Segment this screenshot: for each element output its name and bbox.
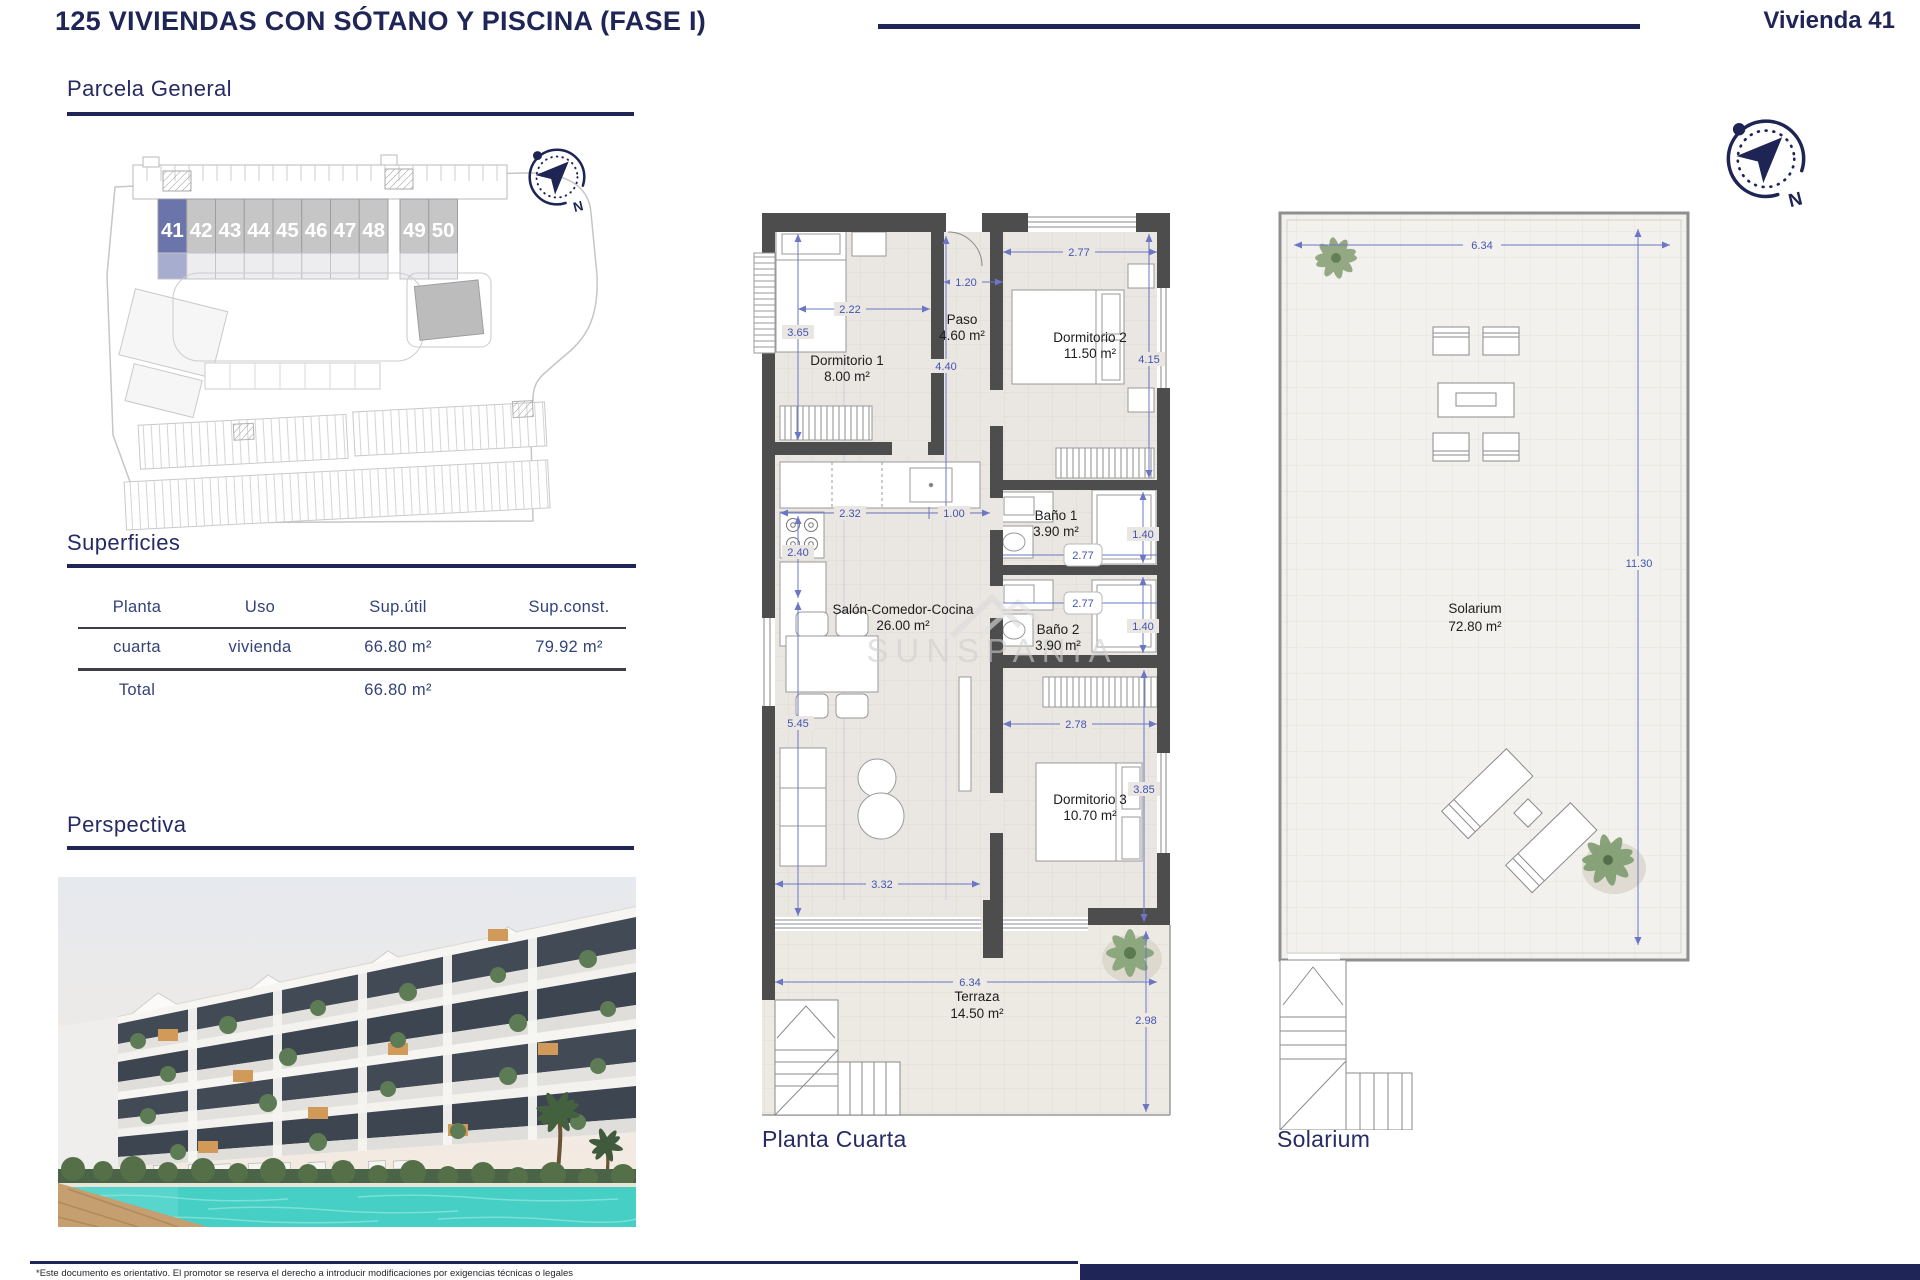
total-label: Total [92, 681, 182, 700]
side-building [58, 1017, 118, 1172]
page-title: 125 VIVIENDAS CON SÓTANO Y PISCINA (FASE… [55, 6, 706, 37]
svg-text:3.90 m²: 3.90 m² [1033, 524, 1079, 539]
brochure-page: { "header": { "title": "125 VIVIENDAS CO… [0, 0, 1920, 1280]
svg-text:Salón-Comedor-Cocina: Salón-Comedor-Cocina [832, 602, 974, 617]
svg-text:2.40: 2.40 [787, 547, 808, 559]
svg-text:44: 44 [247, 219, 270, 242]
chair [836, 694, 868, 718]
svg-text:1.20: 1.20 [955, 277, 976, 289]
svg-text:2.78: 2.78 [1065, 719, 1086, 731]
footer-bar [1080, 1264, 1920, 1280]
svg-text:2.32: 2.32 [839, 508, 860, 520]
svg-text:3.85: 3.85 [1133, 784, 1154, 796]
floor-plan: SUNSPANIA [740, 200, 1180, 1130]
cell-planta: cuarta [92, 638, 182, 657]
svg-text:Dormitorio 1: Dormitorio 1 [810, 353, 884, 368]
svg-text:Baño 1: Baño 1 [1035, 508, 1078, 523]
section-parcela-general: Parcela General [67, 76, 232, 102]
cell-sup-const: 79.92 m² [504, 638, 634, 657]
svg-text:1.40: 1.40 [1132, 529, 1153, 541]
cell-sup-util: 66.80 m² [343, 638, 453, 657]
dining-table [786, 636, 878, 692]
svg-text:4.15: 4.15 [1138, 354, 1159, 366]
svg-text:11.50 m²: 11.50 m² [1064, 346, 1117, 361]
compass-dot [1733, 123, 1745, 135]
svg-text:5.45: 5.45 [787, 718, 808, 730]
svg-text:6.34: 6.34 [959, 977, 980, 989]
parcela-rule [67, 112, 634, 116]
unit-title: Vivienda 41 [1650, 7, 1895, 35]
floor-plan-caption: Planta Cuarta [762, 1126, 907, 1153]
compass-icon: N [1712, 105, 1820, 218]
perspectiva-rule [67, 846, 634, 850]
total-sup-util: 66.80 m² [343, 681, 453, 700]
svg-text:14.50 m²: 14.50 m² [950, 1006, 1004, 1021]
svg-text:2.22: 2.22 [839, 304, 860, 316]
col-header-sup-const: Sup.const. [504, 598, 634, 617]
svg-text:45: 45 [276, 219, 299, 242]
solarium-dim-height: 11.30 [1626, 558, 1653, 570]
col-header-sup-util: Sup.útil [343, 598, 453, 617]
svg-text:50: 50 [432, 219, 455, 242]
table-total-line [78, 668, 626, 671]
svg-text:4.40: 4.40 [935, 361, 956, 373]
tv-unit [959, 677, 971, 791]
solarium-stairs [1280, 954, 1412, 1130]
svg-text:41: 41 [161, 219, 184, 242]
round-table [858, 759, 896, 797]
compass-north-label: N [1786, 187, 1804, 211]
wardrobe-1 [780, 406, 872, 440]
solarium-caption: Solarium [1277, 1126, 1370, 1153]
side-table [852, 232, 886, 256]
svg-text:26.00 m²: 26.00 m² [876, 618, 930, 633]
svg-text:42: 42 [190, 219, 213, 242]
compass-north-label: N [572, 198, 585, 215]
wardrobe-2 [1056, 448, 1154, 478]
chair [796, 612, 828, 636]
svg-text:1.40: 1.40 [1132, 621, 1153, 633]
svg-text:8.00 m²: 8.00 m² [824, 369, 870, 384]
section-perspectiva: Perspectiva [67, 812, 186, 838]
svg-text:2.98: 2.98 [1135, 1015, 1156, 1027]
svg-text:Paso: Paso [947, 312, 978, 327]
disclaimer-text: *Este documento es orientativo. El promo… [36, 1268, 573, 1279]
svg-text:Dormitorio 3: Dormitorio 3 [1053, 792, 1127, 807]
svg-text:43: 43 [218, 219, 241, 242]
svg-text:3.32: 3.32 [871, 879, 892, 891]
unit-numbers: 41 42 43 44 45 46 47 48 49 50 [161, 219, 455, 242]
round-table [858, 793, 904, 839]
svg-text:Baño 2: Baño 2 [1037, 622, 1080, 637]
chair [796, 694, 828, 718]
col-header-uso: Uso [215, 598, 305, 617]
svg-text:1.00: 1.00 [943, 508, 964, 520]
svg-text:Dormitorio 2: Dormitorio 2 [1053, 330, 1127, 345]
svg-text:10.70 m²: 10.70 m² [1063, 808, 1117, 823]
svg-text:72.80 m²: 72.80 m² [1448, 619, 1502, 634]
section-superficies: Superficies [67, 530, 180, 556]
svg-text:49: 49 [403, 219, 426, 242]
svg-text:48: 48 [362, 219, 385, 242]
svg-text:46: 46 [305, 219, 328, 242]
svg-text:3.90 m²: 3.90 m² [1035, 638, 1081, 653]
svg-text:47: 47 [333, 219, 356, 242]
compass-dot [533, 151, 542, 160]
svg-text:2.77: 2.77 [1072, 598, 1093, 610]
solarium-label: Solarium [1448, 601, 1501, 616]
title-rule [878, 24, 1640, 29]
svg-text:4.60 m²: 4.60 m² [939, 328, 985, 343]
carport-band [133, 155, 507, 199]
solarium-dim-width: 6.34 [1471, 240, 1492, 252]
table-header-line [78, 627, 626, 629]
cell-uso: vivienda [215, 638, 305, 657]
svg-text:2.77: 2.77 [1068, 247, 1089, 259]
col-header-planta: Planta [92, 598, 182, 617]
wardrobe-3 [1043, 677, 1157, 707]
compass-icon: N [518, 138, 596, 220]
footer-rule [30, 1261, 1078, 1264]
perspective-render [58, 877, 636, 1227]
svg-text:Terraza: Terraza [954, 989, 1000, 1004]
superficies-rule [67, 564, 636, 568]
sofa [780, 748, 826, 866]
svg-text:2.77: 2.77 [1072, 550, 1093, 562]
svg-text:3.65: 3.65 [787, 327, 808, 339]
solarium-plan: 6.34 11.30 Solarium 72.80 m² [1270, 205, 1702, 1130]
